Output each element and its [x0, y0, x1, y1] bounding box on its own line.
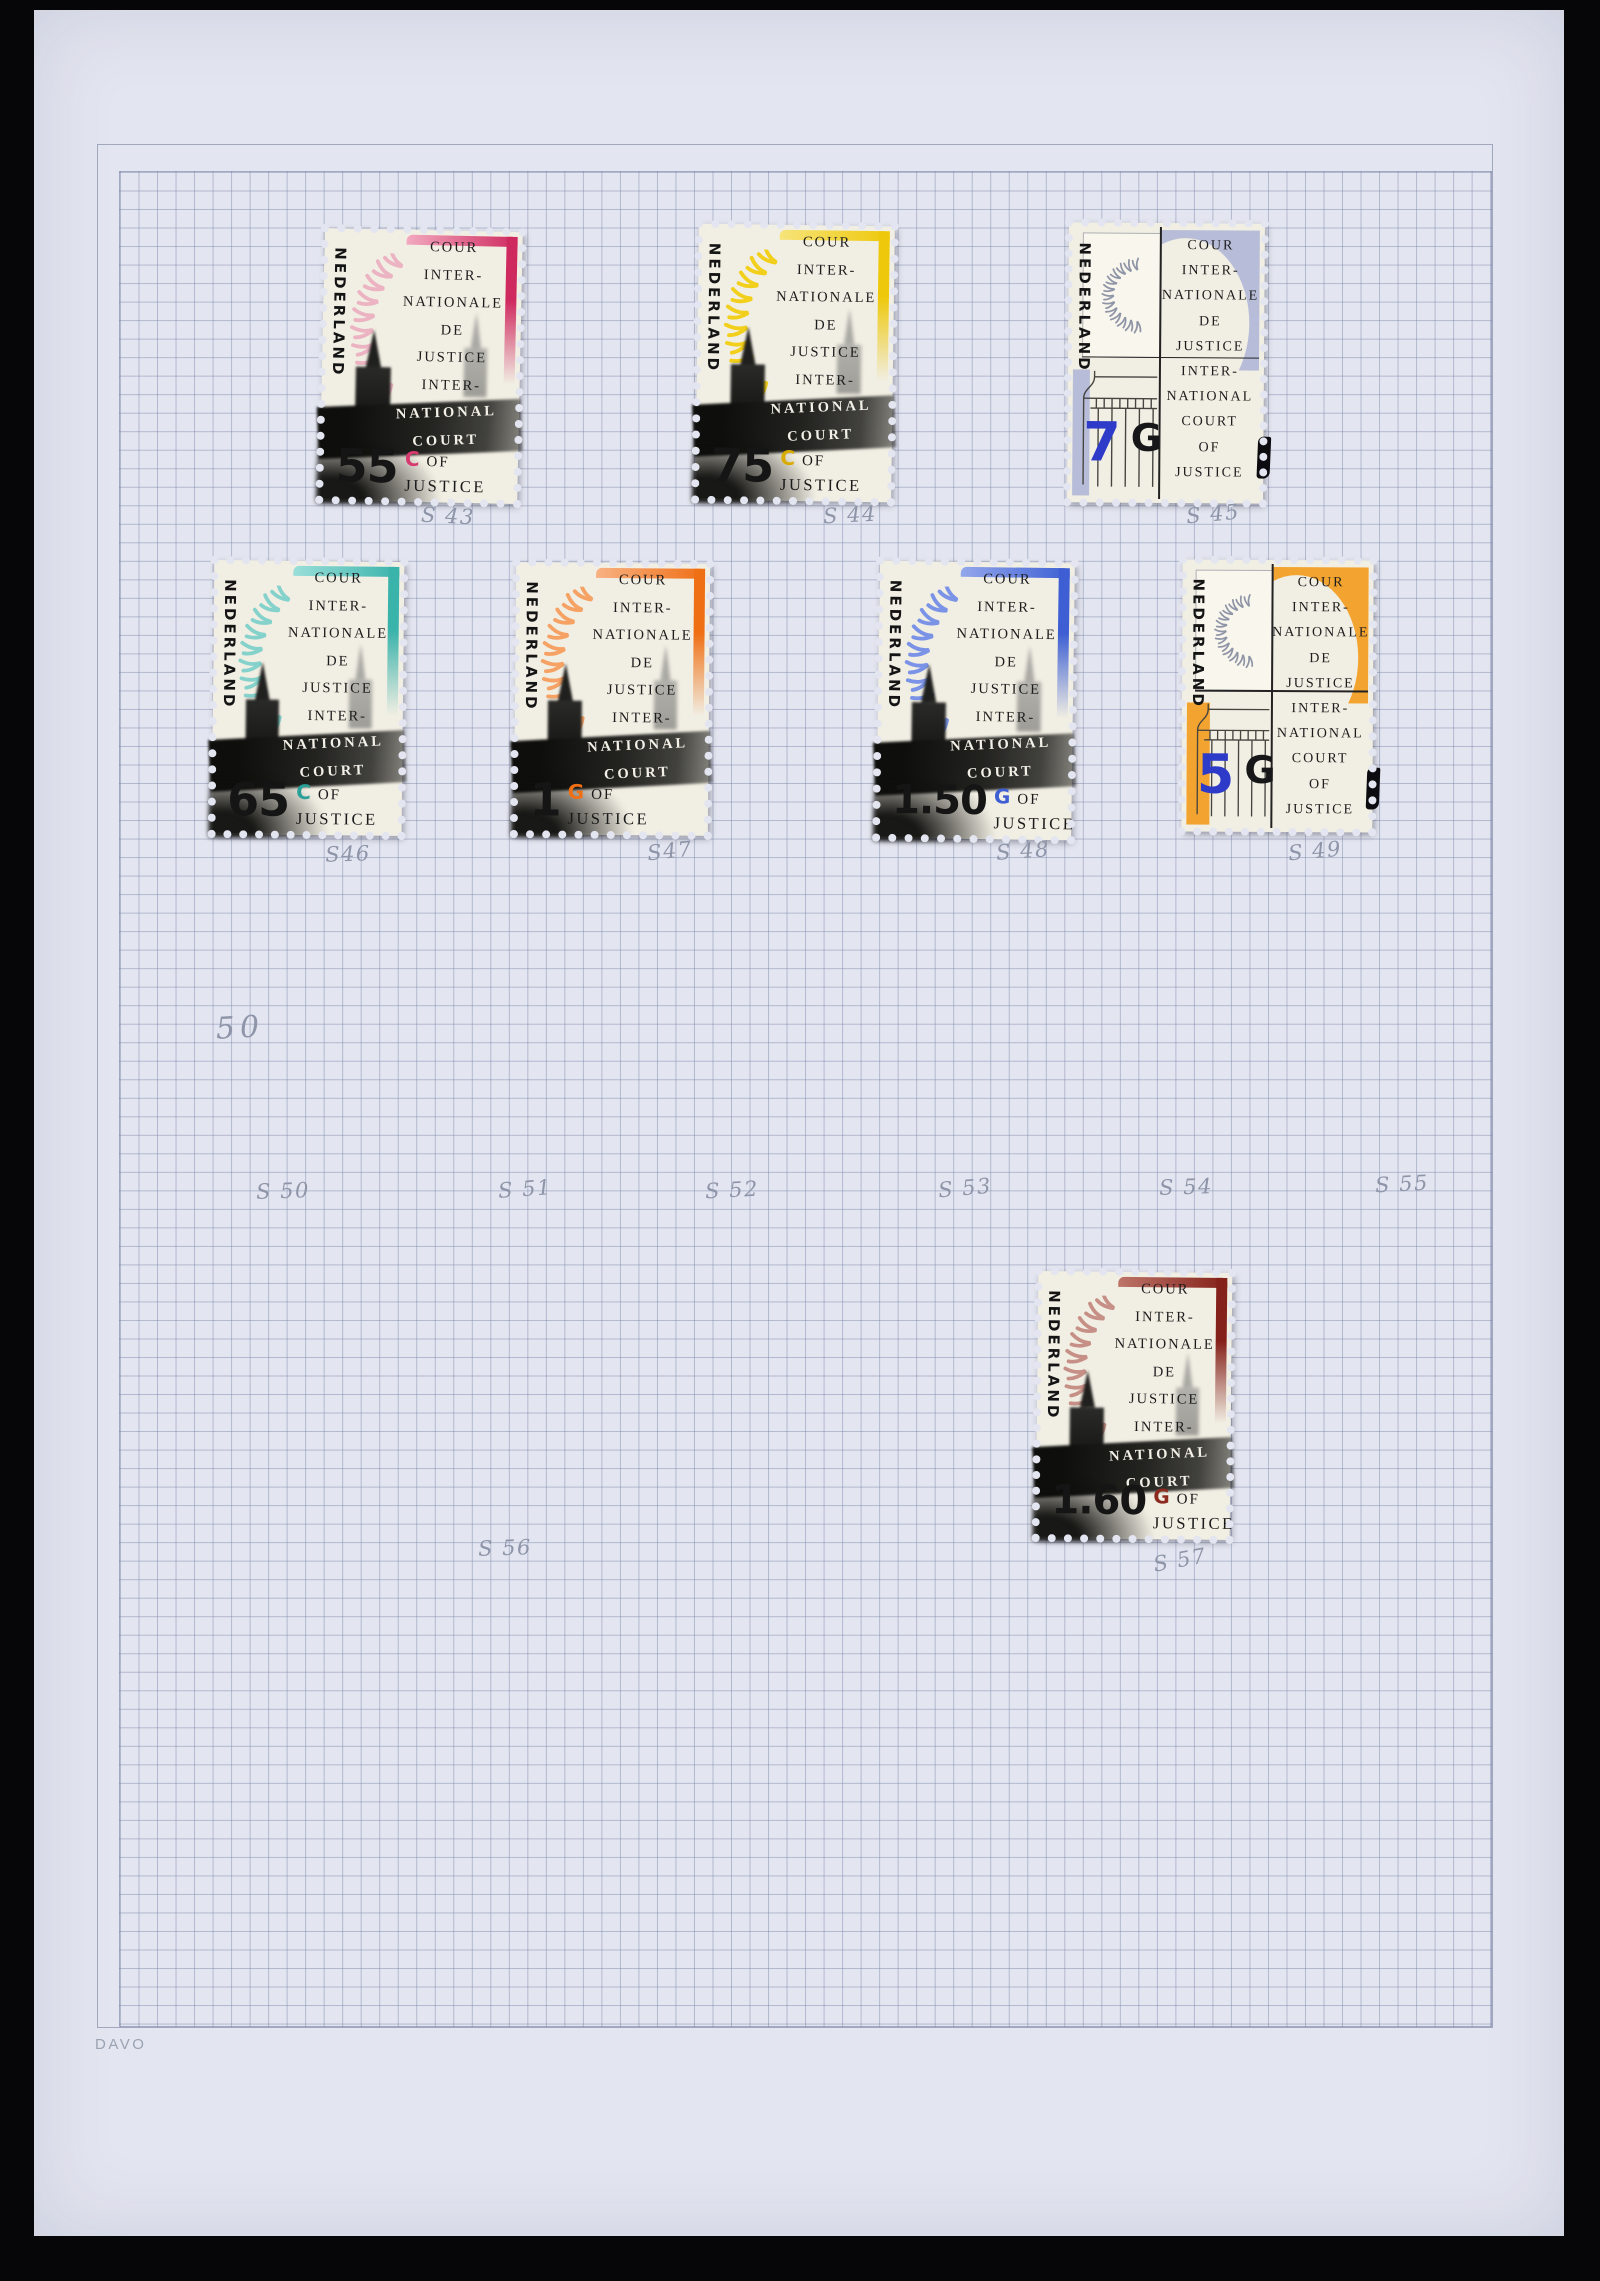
of-label: OF [426, 454, 450, 471]
country-label: NEDERLAND [220, 579, 239, 709]
inscription-line: COUR [1161, 233, 1261, 259]
inscription-line: INTER- [389, 371, 514, 401]
laurel-wreath-icon [1208, 577, 1266, 687]
inscription-line: COUR [765, 229, 889, 258]
justice-label: JUSTICE [1153, 1513, 1235, 1534]
pencil-label: S47 [646, 837, 694, 866]
justice-label: JUSTICE [780, 475, 862, 496]
of-label: OF [591, 787, 614, 804]
inscription-line: NATIONALE [945, 621, 1068, 650]
currency-letter: C [780, 446, 795, 470]
currency-letter: G [1131, 419, 1162, 457]
of-label: OF [1017, 792, 1040, 809]
inscription-line: INTER- [1161, 258, 1261, 284]
stamp: NEDERLAND COURINTER-NATIONALEDEJUSTICEIN… [1036, 1271, 1233, 1540]
inscription-line: COUR [582, 567, 704, 596]
pencil-label: S46 [325, 841, 371, 867]
stamp-inscription: COURINTER-NATIONALEDEJUSTICEINTER-NATION… [387, 233, 516, 456]
inscription-line: JUSTICE [944, 676, 1067, 705]
inscription-line: OF [1159, 435, 1259, 461]
inscription-line: DE [278, 647, 398, 676]
inscription-line: INTER- [1104, 1303, 1227, 1332]
denomination-value: 65 [227, 776, 289, 823]
denomination: 7 G [1083, 416, 1162, 471]
inscription-line: COUR [1104, 1276, 1227, 1305]
pencil-label: S 43 [421, 503, 476, 530]
inscription-line: JUSTICE [1103, 1386, 1226, 1415]
black-edge-mark [1256, 436, 1271, 479]
inscription-line: DE [1160, 309, 1260, 335]
pencil-label: S 56 [478, 1535, 533, 1561]
stamp-inscription: COURINTER-NATIONALEDEJUSTICEINTER-NATION… [1271, 570, 1370, 823]
pencil-label: S 55 [1375, 1171, 1430, 1198]
inscription-line: DE [1103, 1358, 1226, 1387]
pencil-label: S 44 [823, 502, 878, 529]
pencil-label: S 53 [937, 1174, 993, 1203]
pencil-label: S 45 [1185, 500, 1241, 529]
inscription-line: INTER- [945, 593, 1068, 622]
stamp: NEDERLAND COURINTER-NATIONALEDEJUSTICEIN… [319, 228, 523, 504]
inscription-line: NATIONAL [759, 392, 883, 424]
inscription-line: NATIONALE [1160, 283, 1260, 309]
photographed-album-page: DAVO NEDERLAND COURINTER-NATIONALEDEJUST… [0, 0, 1600, 2281]
country-label: NEDERLAND [1189, 579, 1208, 709]
denomination: 55 C OF JUSTICE [335, 442, 487, 497]
denomination-value: 5 [1197, 747, 1235, 801]
inscription-line: INTER- [278, 592, 398, 621]
pencil-label: S 48 [995, 837, 1050, 865]
denomination-value: 1.50 [892, 780, 987, 821]
denomination-value: 55 [335, 442, 398, 489]
pencil-label: S 49 [1287, 837, 1343, 866]
inscription-line: JUSTICE [1271, 797, 1369, 823]
inscription-line: INTER- [763, 366, 887, 395]
inscription-line: NATIONALE [764, 284, 888, 313]
stamp-inscription: COURINTER-NATIONALEDEJUSTICEINTER-NATION… [762, 229, 889, 451]
inscription-line: JUSTICE [1159, 460, 1259, 486]
currency-letter: C [405, 447, 420, 471]
stamp-inscription: COURINTER-NATIONALEDEJUSTICEINTER-NATION… [277, 565, 399, 786]
inscription-line: NATIONAL [939, 729, 1063, 761]
country-label: NEDERLAND [885, 580, 905, 710]
inscription-line: DE [1272, 646, 1370, 672]
currency-letter: G [1153, 1484, 1170, 1508]
country-label: NEDERLAND [1075, 242, 1094, 372]
justice-label: JUSTICE [404, 476, 486, 498]
inscription-line: NATIONAL [1160, 384, 1260, 410]
laurel-wreath-icon [1095, 241, 1155, 355]
inscription-line: JUSTICE [581, 677, 703, 706]
brand-label: DAVO [95, 2036, 146, 2053]
pencil-label: S 50 [256, 1178, 311, 1204]
stamp: NEDERLAND COURINTER-NATIONALEDEJUSTICEIN… [695, 224, 895, 503]
inscription-line: COUR [279, 565, 399, 594]
stamp: NEDERLAND COURINTER-NATIONALEDEJUSTICEIN… [1181, 560, 1373, 833]
denomination: 1.50 G OF JUSTICE [892, 780, 1076, 835]
inscription-line: NATIONAL [384, 398, 510, 429]
stamp: NEDERLAND COURINTER-NATIONALEDEJUSTICEIN… [1067, 222, 1265, 503]
of-label: OF [318, 787, 341, 804]
inscription-line: DE [764, 311, 888, 340]
justice-label: JUSTICE [993, 813, 1075, 834]
of-label: OF [1177, 1491, 1200, 1508]
inscription-line: NATIONALE [390, 288, 515, 318]
inscription-line: INTER- [582, 594, 704, 623]
stamp-inscription: COURINTER-NATIONALEDEJUSTICEINTER-NATION… [580, 567, 704, 788]
denomination: 5 G [1197, 747, 1276, 801]
inscription-line: DE [945, 648, 1068, 677]
pencil-label: 50 [215, 1009, 265, 1046]
inscription-line: INTER- [1272, 696, 1370, 722]
pencil-label: S 54 [1159, 1174, 1214, 1200]
of-label: OF [802, 453, 825, 470]
inscription-line: DE [390, 316, 515, 346]
inscription-line: INTER- [1160, 359, 1260, 385]
stamp-inscription: COURINTER-NATIONALEDEJUSTICEINTER-NATION… [943, 566, 1069, 788]
country-label: NEDERLAND [1044, 1290, 1063, 1420]
stamp-inscription: COURINTER-NATIONALEDEJUSTICEINTER-NATION… [1159, 233, 1261, 486]
inscription-line: INTER- [1103, 1413, 1226, 1442]
denomination: 65 C OF JUSTICE [227, 776, 378, 830]
inscription-line: JUSTICE [389, 343, 514, 373]
inscription-line: INTER- [277, 702, 397, 731]
inscription-line: JUSTICE [764, 339, 888, 368]
inscription-line: NATIONALE [1103, 1331, 1226, 1360]
inscription-line: DE [581, 649, 703, 678]
denomination: 1.60 G OF JUSTICE [1051, 1480, 1235, 1534]
inscription-line: NATIONALE [278, 620, 398, 649]
currency-letter: G [994, 784, 1011, 808]
laurel-panel [1082, 232, 1162, 358]
inscription-line: INTER- [1272, 595, 1370, 621]
pencil-label: S 51 [497, 1175, 552, 1203]
denomination-value: 1 [529, 776, 560, 822]
album-page: DAVO NEDERLAND COURINTER-NATIONALEDEJUST… [34, 10, 1564, 2236]
denomination: 1 G OF JUSTICE [529, 776, 649, 829]
inscription-line: JUSTICE [278, 675, 398, 704]
inscription-line: NATIONAL [1272, 721, 1370, 747]
country-label: NEDERLAND [522, 581, 541, 711]
stamp: NEDERLAND COURINTER-NATIONALEDEJUSTICEIN… [514, 562, 710, 836]
currency-letter: C [296, 780, 311, 804]
currency-letter: G [1244, 751, 1275, 789]
country-label: NEDERLAND [704, 243, 724, 373]
black-edge-mark [1366, 767, 1381, 809]
inscription-line: COURT [1160, 409, 1260, 435]
inscription-line: COUR [392, 233, 517, 263]
inscription-line: OF [1271, 772, 1369, 798]
justice-label: JUSTICE [567, 809, 649, 830]
stamp: NEDERLAND COURINTER-NATIONALEDEJUSTICEIN… [876, 561, 1075, 841]
denomination-value: 75 [711, 442, 774, 489]
inscription-line: INTER- [765, 256, 889, 285]
stamp-inscription: COURINTER-NATIONALEDEJUSTICEINTER-NATION… [1102, 1276, 1227, 1497]
inscription-line: NATIONALE [1272, 620, 1370, 646]
inscription-line: INTER- [391, 261, 516, 291]
inscription-line: COUR [1272, 570, 1370, 596]
justice-label: JUSTICE [296, 809, 378, 830]
pencil-label: S 52 [705, 1177, 760, 1204]
inscription-line: INTER- [581, 704, 703, 733]
denomination-value: 1.60 [1051, 1480, 1146, 1521]
stamp: NEDERLAND COURINTER-NATIONALEDEJUSTICEIN… [212, 560, 405, 836]
inscription-line: NATIONALE [581, 622, 703, 651]
currency-letter: G [568, 780, 585, 804]
denomination-value: 7 [1083, 416, 1121, 470]
inscription-line: COURT [1271, 746, 1369, 772]
inscription-line: JUSTICE [1160, 334, 1260, 360]
denomination: 75 C OF JUSTICE [711, 442, 862, 496]
inscription-line: COUR [946, 566, 1069, 595]
inscription-line: JUSTICE [1272, 671, 1370, 697]
country-label: NEDERLAND [329, 247, 350, 378]
inscription-line: INTER- [944, 703, 1067, 732]
